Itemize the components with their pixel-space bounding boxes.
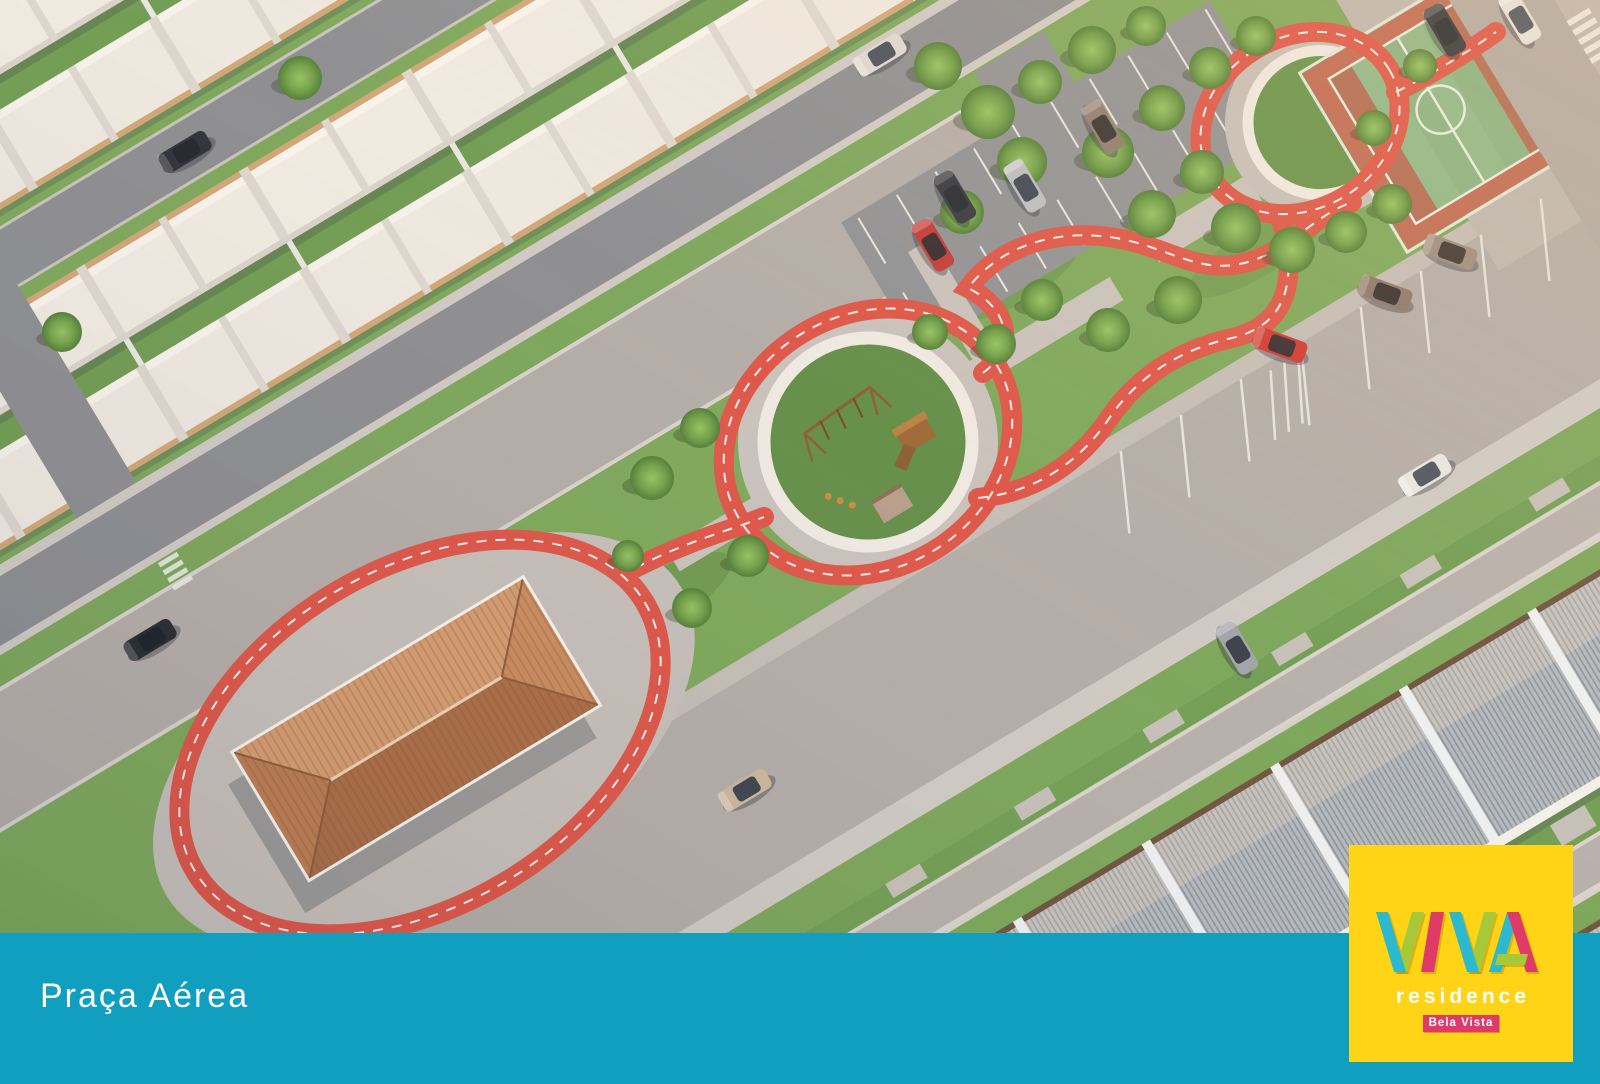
brand-badge: Bela Vista [1423,1015,1499,1032]
brand-name-text: VIVA [1349,845,1350,846]
brand-logo: VIVA residence Bela Vista [1349,845,1573,1062]
brand-subtitle: residence [1349,985,1573,1009]
caption-title: Praça Aérea [40,977,249,1016]
aerial-render [0,0,1600,933]
viva-wordmark [1370,908,1550,976]
sunlight-overlay [0,0,1600,933]
page: Praça Aérea VIVA residence Bela Vista [0,0,1600,1084]
